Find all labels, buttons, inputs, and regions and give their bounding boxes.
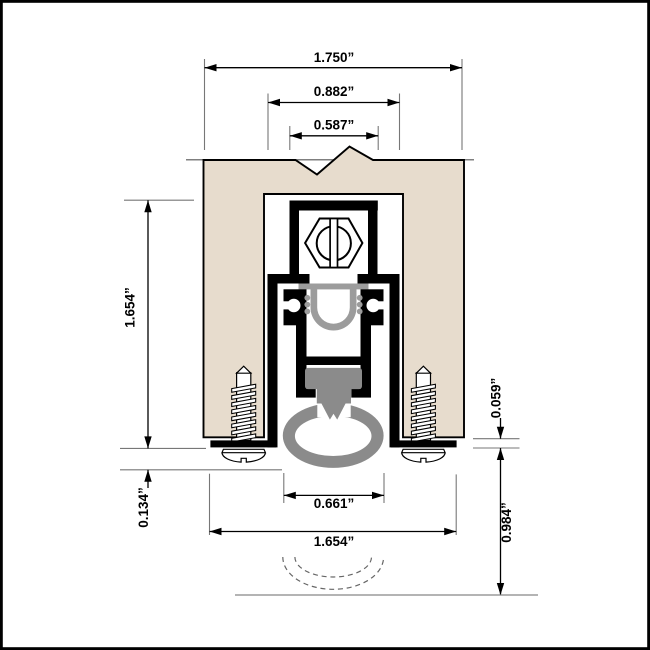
svg-text:1.750”: 1.750” xyxy=(314,50,355,65)
svg-text:1.654”: 1.654” xyxy=(123,287,138,328)
svg-text:0.882”: 0.882” xyxy=(314,84,355,99)
svg-text:0.134”: 0.134” xyxy=(136,487,151,528)
svg-text:0.661”: 0.661” xyxy=(314,496,355,511)
svg-text:0.587”: 0.587” xyxy=(314,118,355,133)
svg-text:1.654”: 1.654” xyxy=(314,534,355,549)
svg-text:0.984”: 0.984” xyxy=(499,502,514,543)
svg-text:0.059”: 0.059” xyxy=(489,378,504,419)
